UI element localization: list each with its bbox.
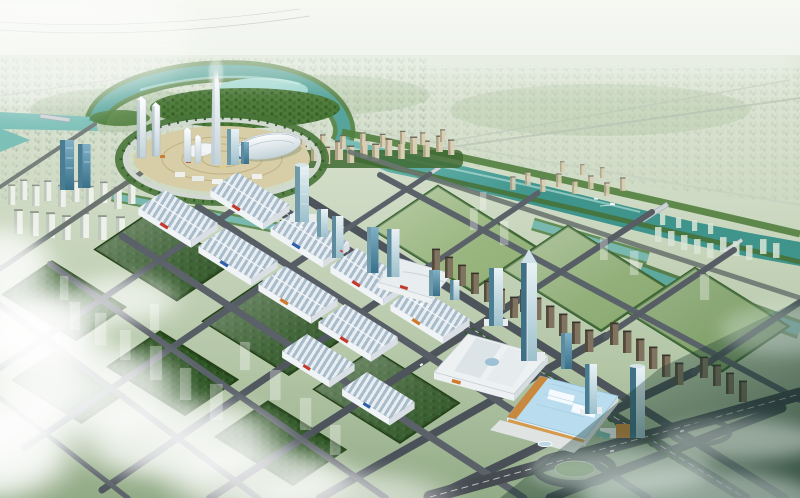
glass-tower — [561, 333, 572, 369]
rendering-canvas — [0, 0, 800, 498]
glass-tower — [429, 270, 440, 296]
aerial-masterplan-rendering — [0, 0, 800, 498]
glass-tower — [367, 227, 379, 273]
glass-tower — [317, 209, 328, 237]
glass-tower — [450, 280, 460, 300]
fountain — [538, 441, 552, 446]
horizon-haze — [0, 40, 800, 80]
